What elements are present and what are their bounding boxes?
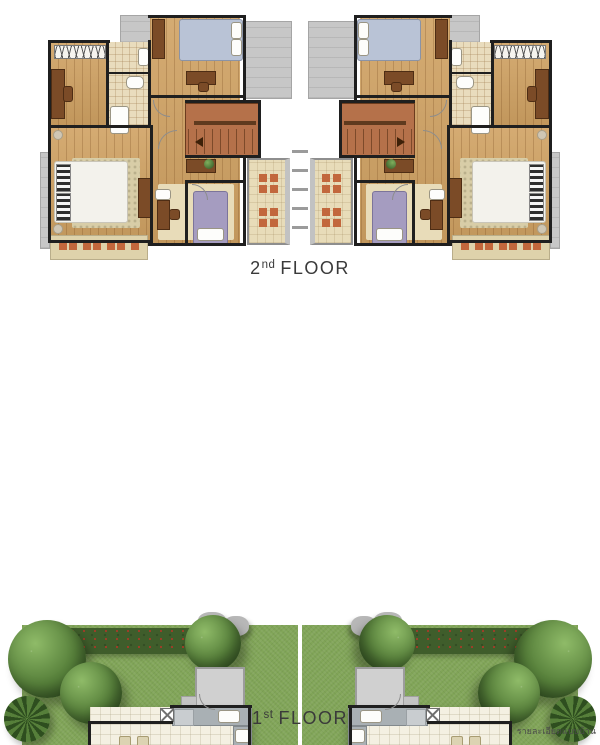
- rear-terrace: [452, 235, 550, 260]
- desk-chair: [169, 209, 180, 220]
- stair-direction-arrow: [190, 137, 203, 147]
- wall: [339, 155, 415, 158]
- wall: [185, 183, 188, 245]
- desk: [535, 69, 549, 119]
- wall: [243, 15, 246, 103]
- bed-pillow: [231, 39, 242, 56]
- watermark-text: รายละเอียดแบบบ้าน: [517, 724, 596, 738]
- balcony-connector-fence: [292, 150, 308, 230]
- floor-ordinal: st: [264, 709, 274, 721]
- stair-direction-arrow: [397, 137, 410, 147]
- bathroom-sink: [451, 48, 462, 66]
- wall: [150, 125, 153, 246]
- bathroom-divider-wall: [450, 72, 492, 74]
- wall: [354, 155, 357, 246]
- wall: [48, 125, 153, 128]
- staircase: [340, 103, 415, 157]
- first-floor-label: 1stFLOOR: [0, 708, 600, 729]
- bathtub: [471, 106, 490, 134]
- stair-railing: [194, 121, 256, 125]
- striped-pillow: [529, 164, 544, 192]
- wall: [491, 40, 494, 128]
- wall: [447, 240, 552, 243]
- floor-ordinal: nd: [262, 259, 276, 271]
- rear-terrace: [50, 235, 148, 260]
- balcony-tile-cluster: [259, 174, 267, 182]
- desk-chair: [420, 209, 431, 220]
- wardrobe: [435, 19, 448, 59]
- roof-ledge: [448, 15, 480, 43]
- potted-plant: [204, 159, 214, 169]
- balcony-tile-cluster: [333, 208, 341, 216]
- bed-pillow: [197, 228, 224, 241]
- wall: [185, 100, 261, 103]
- wall: [106, 40, 109, 128]
- wall: [339, 100, 415, 103]
- closet-hanger-strip: [54, 45, 106, 59]
- floor-word: FLOOR: [280, 258, 350, 278]
- roof-panel: [243, 21, 292, 99]
- bed-pillow: [358, 22, 369, 39]
- second-floor-label: 2ndFLOOR: [0, 258, 600, 279]
- toilet: [126, 76, 144, 89]
- terrace-planters: [59, 243, 67, 250]
- staircase: [185, 103, 260, 157]
- wall: [258, 100, 261, 158]
- floor-word: FLOOR: [278, 708, 348, 728]
- floorplan-canvas: 2ndFLOOR: [0, 0, 600, 745]
- dresser: [449, 178, 462, 218]
- terrace-planters: [533, 243, 541, 250]
- ac-unit: [155, 189, 171, 200]
- wall: [48, 240, 153, 243]
- desk-chair: [527, 86, 537, 102]
- second-floor-unit-right: [308, 12, 554, 260]
- bed-pillow: [231, 22, 242, 39]
- wall: [48, 40, 110, 43]
- roof-ledge: [120, 15, 152, 43]
- desk-chair: [198, 82, 209, 92]
- wall: [48, 40, 51, 243]
- first-floor-section: 1stFLOOR: [0, 300, 600, 745]
- ceiling-light: [53, 224, 63, 234]
- wall: [490, 40, 552, 43]
- wall: [549, 40, 552, 243]
- wall: [148, 243, 246, 246]
- potted-plant: [386, 159, 396, 169]
- wall: [148, 95, 246, 98]
- ceiling-light: [53, 130, 63, 140]
- side-balcony: [247, 158, 290, 245]
- second-floor-section: 2ndFLOOR: [0, 0, 600, 300]
- bathroom-divider-wall: [108, 72, 150, 74]
- dining-chair: [119, 736, 131, 745]
- side-balcony: [310, 158, 353, 245]
- wall: [449, 40, 452, 128]
- stair-railing: [344, 121, 406, 125]
- wall: [185, 180, 246, 183]
- balcony-tile-cluster: [333, 174, 341, 182]
- wall: [354, 95, 452, 98]
- second-floor-unit-left: [46, 12, 292, 260]
- toilet: [456, 76, 474, 89]
- wall: [339, 100, 342, 158]
- wall: [412, 183, 415, 245]
- tree: [185, 615, 241, 671]
- cooktop: [350, 729, 365, 743]
- roof-panel: [308, 21, 357, 99]
- dining-chair: [451, 736, 463, 745]
- striped-pillow: [56, 164, 71, 192]
- wall: [354, 243, 452, 246]
- desk: [430, 200, 443, 230]
- floor-number: 1: [252, 708, 264, 728]
- dining-chair: [137, 736, 149, 745]
- bed-pillow: [358, 39, 369, 56]
- desk-chair: [391, 82, 402, 92]
- wall: [185, 155, 261, 158]
- balcony-tile-cluster: [259, 208, 267, 216]
- wall: [447, 125, 450, 246]
- striped-pillow: [56, 193, 71, 221]
- wall: [243, 155, 246, 246]
- wall: [354, 15, 357, 103]
- striped-pillow: [529, 193, 544, 221]
- wall: [148, 40, 151, 128]
- wardrobe: [152, 19, 165, 59]
- tree: [359, 615, 415, 671]
- closet-hanger-strip: [494, 45, 546, 59]
- wall: [354, 180, 415, 183]
- ceiling-light: [537, 130, 547, 140]
- wall: [447, 125, 552, 128]
- ac-unit: [429, 189, 445, 200]
- desk-chair: [63, 86, 73, 102]
- wall: [148, 15, 246, 18]
- ceiling-light: [537, 224, 547, 234]
- floor-number: 2: [250, 258, 262, 278]
- bathtub: [110, 106, 129, 134]
- bed-pillow: [376, 228, 403, 241]
- dining-chair: [469, 736, 481, 745]
- wall: [354, 15, 452, 18]
